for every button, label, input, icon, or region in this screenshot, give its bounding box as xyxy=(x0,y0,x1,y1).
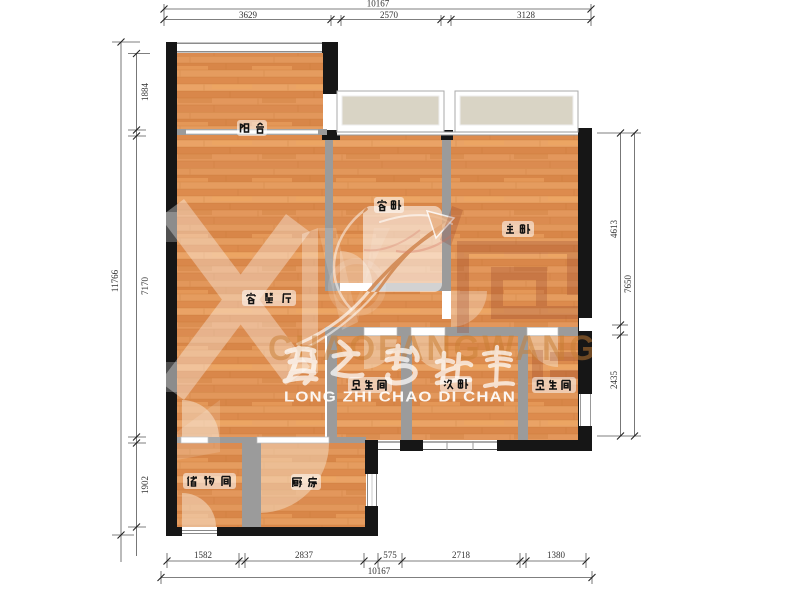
svg-text:CHAOFANGWANG: CHAOFANGWANG xyxy=(268,329,598,368)
svg-text:3629: 3629 xyxy=(239,10,258,20)
svg-text:2718: 2718 xyxy=(452,550,471,560)
svg-text:2435: 2435 xyxy=(609,371,619,390)
svg-text:7650: 7650 xyxy=(623,275,633,294)
svg-text:LONG ZHI CHAO DI CHAN: LONG ZHI CHAO DI CHAN xyxy=(284,389,516,406)
svg-text:10167: 10167 xyxy=(367,0,390,9)
svg-text:3128: 3128 xyxy=(517,10,536,20)
svg-text:2837: 2837 xyxy=(295,550,314,560)
svg-text:1884: 1884 xyxy=(140,83,150,102)
svg-text:4613: 4613 xyxy=(609,220,619,239)
svg-text:1582: 1582 xyxy=(194,550,212,560)
svg-text:11766: 11766 xyxy=(110,269,120,292)
svg-text:1380: 1380 xyxy=(547,550,566,560)
svg-text:10167: 10167 xyxy=(368,566,391,576)
svg-text:1902: 1902 xyxy=(140,476,150,494)
svg-text:7170: 7170 xyxy=(140,277,150,296)
svg-text:2570: 2570 xyxy=(380,10,399,20)
svg-text:575: 575 xyxy=(383,550,397,560)
